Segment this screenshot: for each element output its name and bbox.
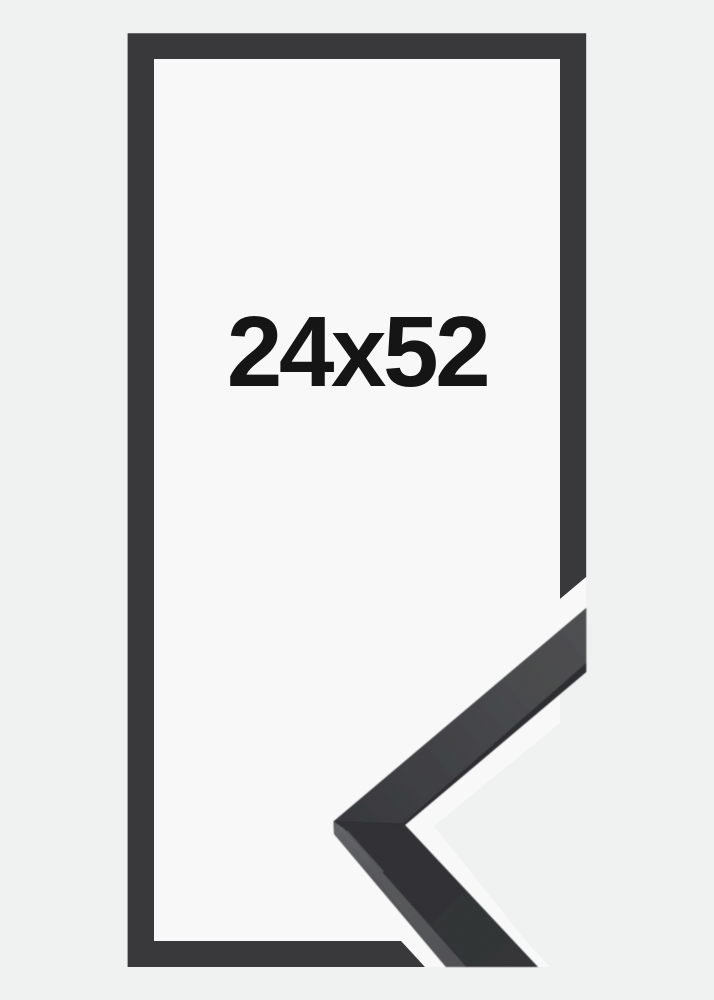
svg-text:24x52: 24x52: [227, 296, 488, 408]
